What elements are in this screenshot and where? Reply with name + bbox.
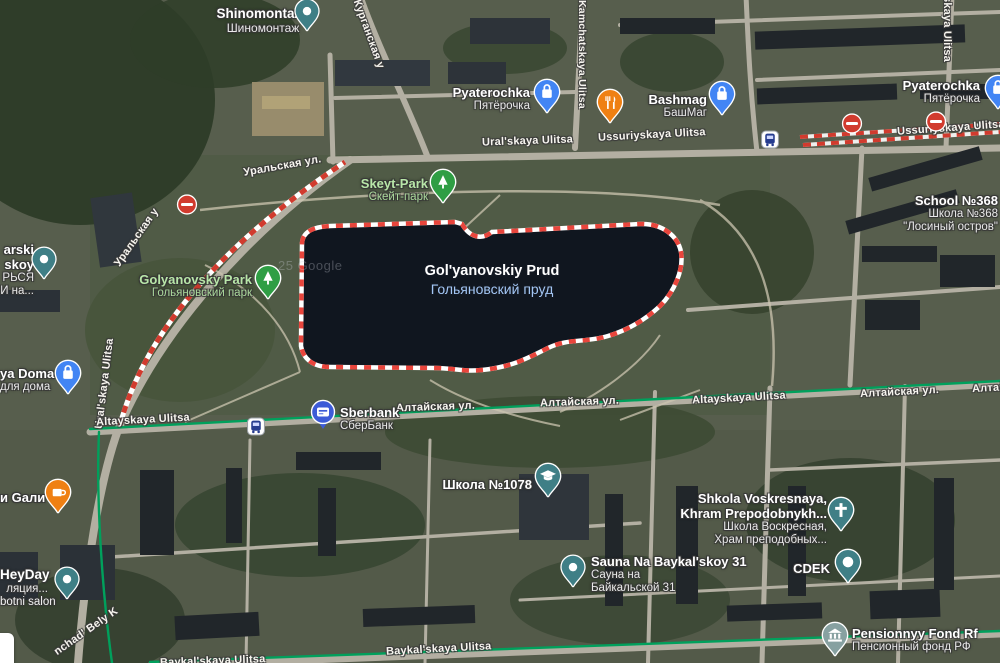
pyaterochka-left-pin[interactable] bbox=[533, 78, 561, 119]
poi-text: Pyaterochka bbox=[880, 78, 980, 93]
left-truncated-pin[interactable] bbox=[31, 246, 57, 285]
poi-label-golyanovsky-park[interactable]: Golyanovsky Park Гольяновский парк bbox=[122, 272, 252, 300]
poi-text: Sauna Na Baykal'skoy 31 bbox=[591, 554, 747, 569]
partial-card bbox=[0, 633, 14, 663]
poi-text: ляция... bbox=[0, 583, 48, 596]
pond-name-en: Gol'yanovskiy Prud bbox=[425, 263, 560, 279]
government-building-icon bbox=[821, 621, 849, 657]
poi-text: для дома bbox=[0, 381, 50, 394]
poi-text: Скейт-парк bbox=[328, 191, 428, 204]
pin-icon bbox=[560, 554, 586, 588]
poi-text: Школа №1078 bbox=[430, 477, 532, 492]
poi-text: Школа Воскресная, bbox=[677, 521, 827, 534]
shopping-bag-icon bbox=[54, 359, 82, 395]
poi-label-school368[interactable]: School №368 Школа №368 "Лосиный остров" bbox=[848, 193, 998, 235]
poi-text: "Лосиный остров" bbox=[848, 221, 998, 234]
poi-text: HeyDay bbox=[0, 567, 48, 583]
shkola1078-pin[interactable] bbox=[534, 462, 562, 503]
dlya-doma-pin[interactable] bbox=[54, 359, 82, 400]
church-cross-icon bbox=[827, 496, 855, 532]
no-entry-icon bbox=[925, 111, 947, 138]
shopping-bag-icon bbox=[984, 74, 1000, 110]
shopping-bag-icon bbox=[708, 80, 736, 116]
poi-text: Пятёрочка bbox=[880, 93, 980, 106]
voskresnaya-pin[interactable] bbox=[827, 496, 855, 537]
pin-icon bbox=[834, 548, 862, 584]
transit-station-icon[interactable] bbox=[761, 131, 779, 154]
poi-text: Skeyt-Park bbox=[328, 176, 428, 191]
poi-label-sauna[interactable]: Sauna Na Baykal'skoy 31 Сауна на Байкаль… bbox=[591, 554, 747, 596]
pond-label[interactable]: Gol'yanovskiy Prud Гольяновский пруд bbox=[425, 263, 560, 297]
shinomontazh-pin[interactable] bbox=[294, 0, 320, 37]
poi-text: botni salon bbox=[0, 596, 48, 609]
poi-label-pyaterochka-right[interactable]: Pyaterochka Пятёрочка bbox=[880, 78, 980, 106]
poi-label-pension[interactable]: Pensionnyy Fond Rf Пенсионный фонд РФ bbox=[852, 626, 978, 654]
poi-text: и Gали bbox=[0, 490, 42, 505]
shopping-bag-icon bbox=[533, 78, 561, 114]
pond-name-ru: Гольяновский пруд bbox=[425, 281, 560, 297]
poi-label-shkola1078[interactable]: Школа №1078 bbox=[430, 477, 532, 492]
poi-text: skoy bbox=[0, 257, 34, 272]
poi-text: РЬСЯ bbox=[0, 272, 34, 285]
no-entry-icon bbox=[841, 113, 863, 140]
poi-text: CDEK bbox=[780, 561, 830, 576]
cdek-pin[interactable] bbox=[834, 548, 862, 589]
poi-text: School №368 bbox=[848, 193, 998, 208]
poi-text: Школа №368 bbox=[848, 208, 998, 221]
poi-label-cdek[interactable]: CDEK bbox=[780, 561, 830, 576]
map-canvas[interactable]: Курганская у Kamchatskaya Ulitsa Ural'sk… bbox=[0, 0, 1000, 663]
heyday-pin[interactable] bbox=[54, 566, 80, 605]
bus-icon bbox=[247, 418, 265, 436]
poi-label-left-truncated[interactable]: arski skoy РЬСЯ И на... bbox=[0, 242, 34, 299]
poi-text: Пятёрочка bbox=[430, 100, 530, 113]
skeyt-park-pin[interactable] bbox=[429, 168, 457, 209]
pin-icon bbox=[294, 0, 320, 32]
poi-text: arski bbox=[0, 242, 34, 257]
poi-label-pyaterochka-left[interactable]: Pyaterochka Пятёрочка bbox=[430, 85, 530, 113]
pyaterochka-right-pin[interactable] bbox=[984, 74, 1000, 115]
poi-text: СберБанк bbox=[340, 420, 399, 433]
pension-fund-pin[interactable] bbox=[821, 621, 849, 662]
transit-station-icon[interactable] bbox=[247, 418, 265, 441]
poi-label-voskresnaya[interactable]: Shkola Voskresnaya, Khram Prepodobnykh..… bbox=[677, 491, 827, 548]
street-label-kamchatskaya: Kamchatskaya Ulitsa bbox=[576, 0, 588, 142]
poi-text: Pyaterochka bbox=[430, 85, 530, 100]
poi-label-sberbank[interactable]: Sberbank СберБанк bbox=[340, 405, 399, 433]
gali-cafe-pin[interactable] bbox=[44, 478, 72, 519]
graduation-cap-icon bbox=[534, 462, 562, 498]
bus-icon bbox=[761, 131, 779, 149]
google-watermark: 25 Google bbox=[278, 258, 343, 273]
poi-text: И на... bbox=[0, 285, 34, 298]
poi-text: Sberbank bbox=[340, 405, 399, 420]
poi-label-dlya-doma[interactable]: ya Doma для дома bbox=[0, 366, 50, 394]
poi-text: Сауна на bbox=[591, 569, 747, 582]
poi-text: Pensionnyy Fond Rf bbox=[852, 626, 978, 641]
pin-icon bbox=[54, 566, 80, 600]
bank-card-icon bbox=[310, 399, 336, 431]
no-entry-icon bbox=[176, 194, 198, 221]
poi-text: Байкальской 31 bbox=[591, 582, 747, 595]
poi-text: Пенсионный фонд РФ bbox=[852, 641, 978, 654]
fork-knife-icon bbox=[596, 88, 624, 124]
poi-label-gali[interactable]: и Gали bbox=[0, 490, 42, 505]
poi-text: Golyanovsky Park bbox=[122, 272, 252, 287]
poi-text: Гольяновский парк bbox=[122, 287, 252, 300]
coffee-cup-icon bbox=[44, 478, 72, 514]
poi-text: Shkola Voskresnaya, bbox=[677, 491, 827, 506]
restaurant-pin[interactable] bbox=[596, 88, 624, 129]
sauna-pin[interactable] bbox=[560, 554, 586, 593]
poi-text: ya Doma bbox=[0, 366, 50, 381]
sberbank-pin[interactable] bbox=[310, 399, 336, 436]
poi-text: Храм преподобных... bbox=[677, 534, 827, 547]
bashmag-pin[interactable] bbox=[708, 80, 736, 121]
pin-icon bbox=[31, 246, 57, 280]
poi-text: Khram Prepodobnykh... bbox=[677, 506, 827, 521]
tree-icon bbox=[429, 168, 457, 204]
poi-label-heyday[interactable]: HeyDay ляция... botni salon bbox=[0, 567, 48, 609]
poi-label-skeyt-park[interactable]: Skeyt-Park Скейт-парк bbox=[328, 176, 428, 204]
